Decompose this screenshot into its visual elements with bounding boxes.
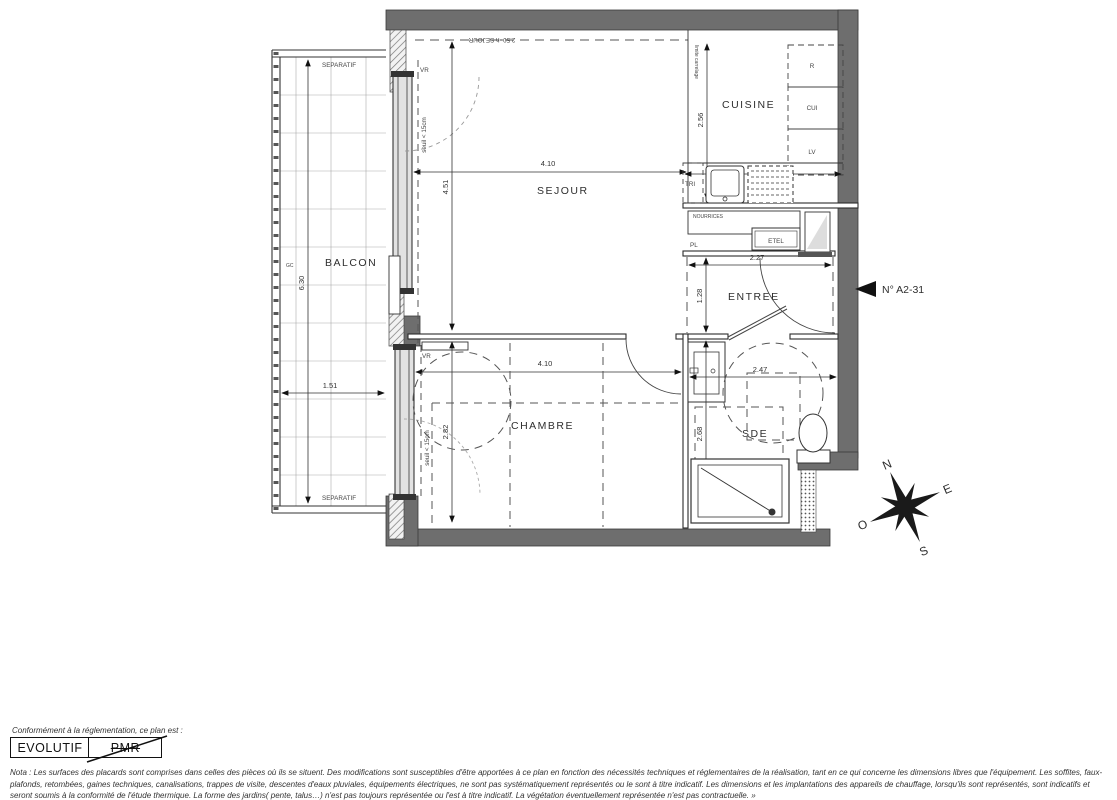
separatif-top-label: SEPARATIF <box>322 62 356 69</box>
sejour-width-dim: 4.10 <box>541 159 556 168</box>
chambre-window: VR seuil < 15cm <box>393 342 480 500</box>
compass-s: S <box>917 543 930 559</box>
sde-label: SDE <box>742 428 768 440</box>
tri-label: TRI <box>685 181 695 188</box>
pl-label: PL <box>690 242 698 249</box>
shower <box>691 459 789 523</box>
chambre-height-dim: 2.82 <box>441 425 450 440</box>
chambre-label: CHAMBRE <box>511 420 574 432</box>
sde-depth-dim: 2.68 <box>695 427 704 442</box>
shaft-door <box>805 212 830 252</box>
legend-block: Conformément à la réglementation, ce pla… <box>10 726 1110 800</box>
refrigerateur-label: R <box>810 63 815 70</box>
chambre-room: 4.10 2.82 CHAMBRE <box>413 339 683 527</box>
unit-number-label: N° A2-31 <box>882 284 924 296</box>
unit-entrance-marker: N° A2-31 <box>855 281 924 297</box>
balcon-length-dim: 6.30 <box>297 276 306 291</box>
balcon-width-dim: 1.51 <box>323 381 338 390</box>
compass-n: N <box>880 457 893 473</box>
evolutif-box: EVOLUTIF <box>10 737 90 758</box>
floorplan-drawing: SEPARATIF SEPARATIF GC BALCON 6.30 1.51 … <box>0 0 1117 750</box>
entree-width-dim: 2.27 <box>750 253 765 262</box>
compass-e: E <box>941 481 954 497</box>
cuisson-label: CUI <box>807 105 818 112</box>
lv-label: LV <box>808 149 816 156</box>
cuisine-label: CUISINE <box>722 99 775 111</box>
etel-label: ETEL <box>768 238 784 245</box>
cuisine-height-dim: 2.56 <box>696 113 705 128</box>
gc-label: GC <box>286 263 294 269</box>
sde-door-leaf <box>728 306 787 340</box>
entree-depth-dim: 1.28 <box>695 289 704 304</box>
wall-stub <box>798 252 832 257</box>
kitchen-sink <box>706 166 744 203</box>
legend-boxes: EVOLUTIF PMR <box>10 737 1110 758</box>
balcony-borders <box>272 50 386 513</box>
balcon-label: BALCON <box>325 257 377 269</box>
limite-carrelage-label: limite carrelage <box>693 45 699 79</box>
sejour-label: SEJOUR <box>537 185 589 197</box>
pmr-box: PMR <box>88 737 162 758</box>
vr-chambre-label: VR <box>422 353 431 360</box>
separatif-bottom-label: SEPARATIF <box>322 495 356 502</box>
entree-room: 2.27 1.28 ENTREE <box>687 253 835 340</box>
evolutif-label: EVOLUTIF <box>17 741 82 755</box>
sejour-room: 2.50=h SEJOUR 4.10 4.51 SEJOUR <box>414 36 688 330</box>
sejour-door-swing-arc <box>405 77 479 151</box>
compass-o: O <box>856 517 870 534</box>
vr-sejour-label: VR <box>420 67 429 74</box>
radiator-chambre <box>422 342 468 350</box>
washbasin <box>688 342 725 402</box>
pmr-label: PMR <box>111 741 140 755</box>
chambre-width-dim: 4.10 <box>538 359 553 368</box>
seuil-sejour-label: seuil < 15cm <box>421 117 428 153</box>
balcony-tile-grid <box>280 57 386 506</box>
floorplan-page: SEPARATIF SEPARATIF GC BALCON 6.30 1.51 … <box>0 0 1117 800</box>
legend-intro: Conformément à la réglementation, ce pla… <box>12 726 1110 735</box>
balcony: SEPARATIF SEPARATIF GC BALCON 6.30 1.51 <box>272 50 386 513</box>
cuisine-room: limite carrelage 2.56 CUISINE R CUI LV T… <box>683 30 843 203</box>
nourrices-label: NOURRICES <box>693 214 724 220</box>
chambre-pmr-circle <box>413 352 511 450</box>
chambre-furniture-dashed <box>432 343 683 527</box>
nota-text: Nota : Les surfaces des placards sont co… <box>10 767 1110 800</box>
entree-label: ENTREE <box>728 291 780 303</box>
chambre-door-swing <box>626 339 681 394</box>
radiator-sejour <box>389 256 400 314</box>
sejour-height-dim: 4.51 <box>441 180 450 195</box>
technical-zone: NOURRICES PL ETEL <box>688 211 832 257</box>
plafond-sejour-label: 2.50=h SEJOUR <box>468 36 515 43</box>
exterior-wall-dotted <box>801 470 816 532</box>
cooktop <box>748 166 793 203</box>
wc <box>797 414 830 463</box>
